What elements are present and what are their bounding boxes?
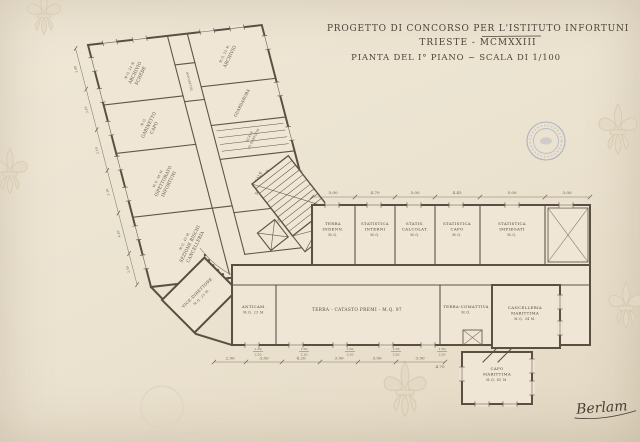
dim-top-4: 5.00 — [507, 190, 517, 195]
room-label-stat-capo-2: CAPO — [451, 227, 464, 232]
dim-top-row: 5.00 4.70 5.00 4.45 5.00 3.00 — [310, 190, 592, 199]
architect-signature: Berlam — [573, 398, 636, 420]
room-label-cancelleria-mar-area: M.Q. 34 M. — [514, 317, 536, 321]
room-label-terra-indenn-area: M.Q. — [328, 233, 337, 237]
plan-svg: PROGETTO DI CONCORSO PER L'ISTITUTO INFO… — [0, 0, 640, 442]
dim-top-3: 4.45 — [452, 190, 462, 195]
room-label-capo-mar-area: M.Q. 45 M. — [486, 378, 508, 382]
room-label-terra-indenn-2: INDENN. — [322, 227, 343, 232]
dim-wing-4: 4.20 — [116, 230, 122, 237]
room-label-catasto: TERRA - CATASTO PREMI - M.Q. 97 — [312, 308, 402, 313]
dim-bottom-1: 3.50 — [259, 356, 269, 361]
win-dim-h: 2.20 — [347, 353, 354, 357]
win-dim-h: 2.20 — [439, 353, 446, 357]
title-line-3: PIANTA DEL I° PIANO ~ SCALA DI 1/100 — [351, 53, 561, 63]
room-label-cancelleria-mar-2: MARITTIMA — [511, 311, 539, 316]
room-label-stat-impiegati-2: IMPIEGATI — [499, 227, 525, 232]
dim-bottom-6: 4.70 — [435, 364, 445, 369]
dim-wing-2: 2.10 — [94, 147, 100, 154]
dim-wing-0: 2.80 — [73, 66, 79, 73]
drawing-sheet: PROGETTO DI CONCORSO PER L'ISTITUTO INFO… — [0, 0, 640, 442]
dim-top-5: 3.00 — [562, 190, 572, 195]
room-label-stat-interni: STATISTICA — [361, 221, 389, 226]
dim-top-1: 4.70 — [370, 190, 380, 195]
win-dim-w: 1.50 — [347, 347, 354, 351]
dim-bottom-4: 3.90 — [372, 356, 382, 361]
win-dim-w: 1.50 — [439, 347, 446, 351]
title-line-1: PROGETTO DI CONCORSO PER L'ISTITUTO INFO… — [327, 24, 629, 34]
room-label-stat-capo-area: M.Q. — [452, 233, 461, 237]
room-label-stat-capo: STATISTICA — [443, 221, 471, 226]
dim-wing-1: 3.10 — [84, 106, 90, 113]
room-label-stat-interni-2: INTERNI — [365, 227, 386, 232]
watermark-circle — [141, 386, 183, 428]
dim-bottom-0: 2.90 — [225, 356, 235, 361]
ink-stamp — [527, 122, 565, 160]
dim-top-0: 5.00 — [328, 190, 338, 195]
title-line-2: TRIESTE - MCMXXIII — [419, 38, 536, 48]
room-label-comattiva: TERRA-COMATTIVA — [443, 304, 489, 309]
room-label-anticamera: ANTICAM. — [241, 304, 266, 309]
dim-bottom-5: 3.90 — [415, 356, 425, 361]
room-label-capo-mar: CAPO — [491, 366, 504, 371]
room-label-stat-impiegati-area: M.Q. — [507, 233, 516, 237]
win-dim-h: 2.20 — [393, 353, 400, 357]
dim-wing-3: 3.10 — [105, 189, 111, 196]
dim-bottom-row: 2.90 3.50 4.20 3.90 3.90 3.90 4.70 — [212, 356, 447, 370]
room-label-stat-calcolat: STATIS. — [406, 221, 424, 226]
room-label-stat-calcolat-area: M.Q. — [410, 233, 419, 237]
title-block: PROGETTO DI CONCORSO PER L'ISTITUTO INFO… — [327, 24, 629, 63]
dim-bottom-3: 3.90 — [334, 356, 344, 361]
win-dim-w: 1.50 — [255, 347, 262, 351]
room-label-capo-mar-2: MARITTIMA — [483, 372, 511, 377]
room-label-terra-indenn: TERRA — [325, 221, 341, 226]
room-label-cancelleria-mar: CANCELLERIA — [508, 305, 542, 310]
room-label-stat-impiegati: STATISTICA — [498, 221, 526, 226]
mcmxxiii-overline — [482, 36, 541, 37]
room-label-stat-interni-area: M.Q. — [370, 233, 379, 237]
room-label-stat-calcolat-2: CALCOLAT. — [402, 227, 428, 232]
dim-bottom-2: 4.20 — [296, 356, 306, 361]
dim-top-2: 5.00 — [410, 190, 420, 195]
room-label-anticamera-area: M.Q. 23 M. — [243, 311, 265, 315]
room-label-comattiva-area: M.Q. — [461, 311, 470, 315]
win-dim-w: 1.50 — [393, 347, 400, 351]
win-dim-w: 1.50 — [301, 347, 308, 351]
dim-wing-5: 3.50 — [125, 266, 131, 273]
